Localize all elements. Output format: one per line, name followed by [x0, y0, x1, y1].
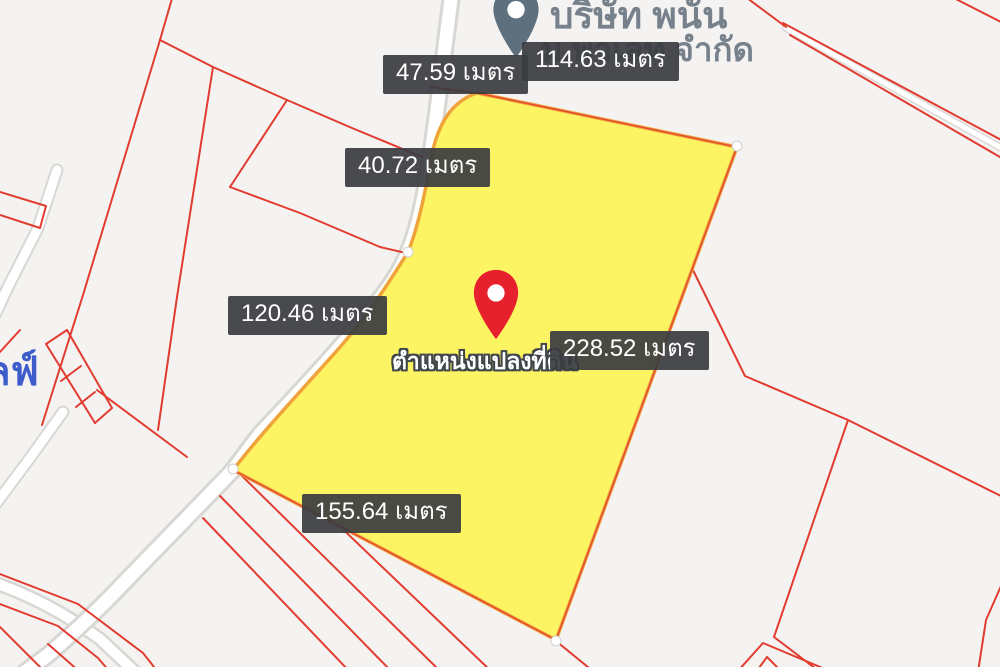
measurement-label: 47.59 เมตร	[383, 55, 528, 94]
map-screenshot: { "map": { "measurement_labels": [ {"val…	[0, 0, 1000, 667]
road-label: ลฟ์	[0, 339, 39, 403]
measurement-label: 114.63 เมตร	[522, 42, 679, 81]
measurement-label: 40.72 เมตร	[345, 148, 490, 187]
measurement-label: 120.46 เมตร	[228, 296, 387, 335]
measurement-label: 155.64 เมตร	[302, 494, 461, 533]
location-marker-icon[interactable]	[471, 267, 521, 347]
measurement-label: 228.52 เมตร	[550, 331, 709, 370]
